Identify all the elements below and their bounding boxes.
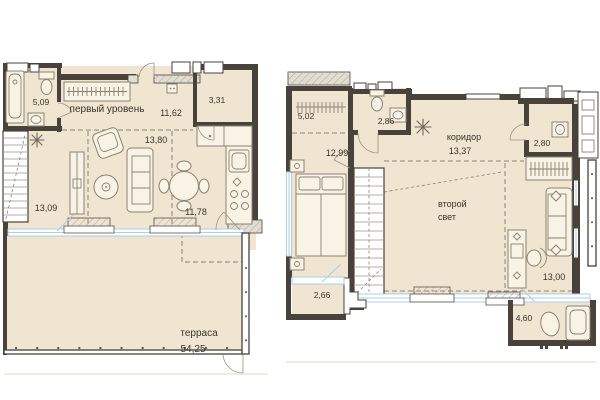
toilet: [370, 90, 384, 111]
window-sill: [150, 218, 200, 233]
intercom-box: [167, 84, 177, 93]
area-label-hallway: 11,62: [160, 108, 182, 118]
area-label-wardrobe: 5,02: [298, 111, 315, 121]
area-label-bathroom: 2,86: [378, 116, 395, 126]
terrace-area: 54,25: [180, 344, 205, 355]
void-label-line2: свет: [438, 212, 456, 222]
void-label-line1: второй: [438, 199, 467, 209]
area-label-bathroom: 5,09: [33, 97, 50, 107]
window-sill: [64, 218, 114, 233]
area-label-wc: 3,31: [209, 95, 226, 105]
area-label-cabinet: 13,00: [543, 272, 566, 282]
level1-title: первый уровень: [70, 104, 145, 115]
level2-plan: 5,02 2,86 коридор 13,37 12,99 2,80 второ…: [286, 72, 598, 362]
area-label-balcony-small: 2,66: [314, 290, 331, 300]
balcony-armchair: [566, 306, 590, 340]
terrace-name: терраса: [180, 328, 218, 339]
floor-plan-canvas: 5,09 первый уровень 11,62 3,31 13,80 13,…: [0, 0, 600, 400]
level1-stairs: [3, 131, 28, 222]
sofa: [127, 148, 153, 212]
wardrobe-rail: [64, 82, 130, 101]
area-label-wc: 2,80: [534, 138, 551, 148]
plant-icon: [30, 133, 44, 147]
corridor-area: 13,37: [449, 146, 472, 156]
level1-plan: 5,09 первый уровень 11,62 3,31 13,80 13,…: [3, 62, 268, 374]
sink: [28, 113, 44, 126]
nightstand: [290, 258, 304, 270]
area-label-room: 13,09: [35, 203, 58, 213]
nightstand: [290, 160, 304, 172]
terrace-exit-swing: [223, 355, 243, 373]
window-sill: [410, 287, 454, 302]
wardrobe-rail: [526, 157, 572, 180]
area-label-kitchen: 11,78: [185, 207, 207, 217]
coffee-table: [94, 175, 118, 199]
bed: [296, 174, 346, 256]
sink: [552, 122, 568, 137]
desk: [508, 230, 526, 288]
apartment-floor-plan: 5,09 первый уровень 11,62 3,31 13,80 13,…: [0, 0, 600, 400]
sofa: [546, 188, 572, 256]
shelf-unit: [70, 152, 84, 214]
level2-stairs: [354, 168, 384, 296]
area-label-balcony-large: 4,60: [516, 313, 533, 323]
level2-left-window: [287, 172, 292, 256]
area-label-living: 13,80: [145, 135, 168, 145]
plant-icon: [415, 119, 431, 135]
corridor-name: коридор: [447, 132, 481, 142]
area-label-bedroom: 12,99: [326, 148, 349, 158]
bathtub: [6, 71, 24, 123]
window-sill: [486, 292, 524, 305]
